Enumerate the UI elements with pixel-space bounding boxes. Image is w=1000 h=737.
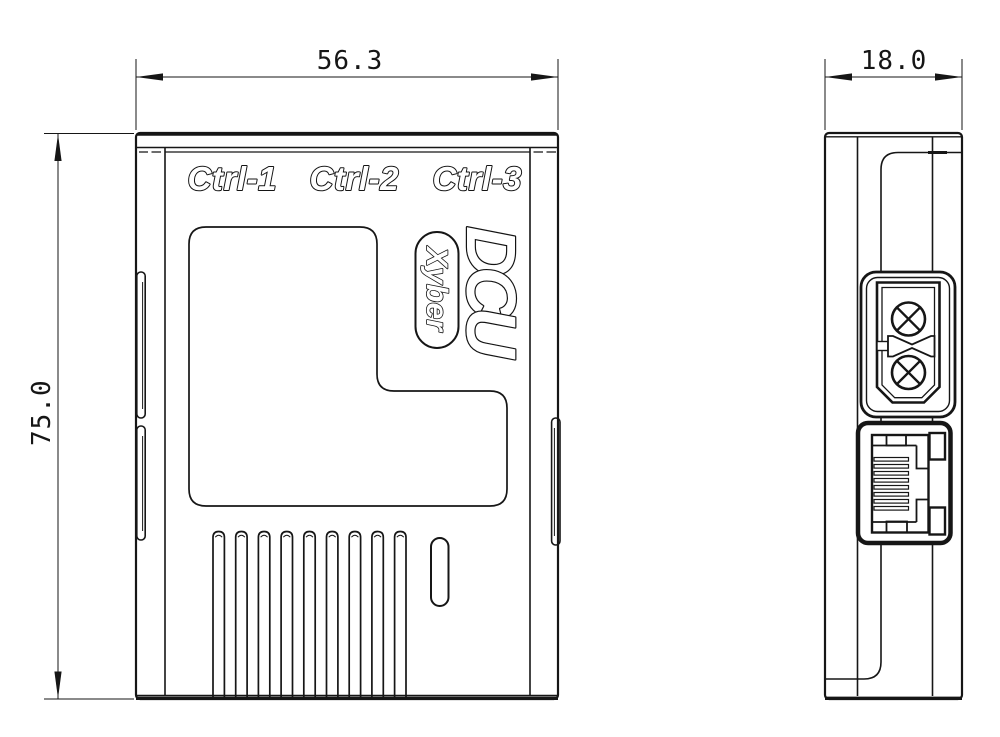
dimension-width-value: 56.3 bbox=[317, 46, 384, 76]
dimension-height: 75.0 bbox=[27, 134, 134, 700]
technical-drawing-page: 56.3 75.0 18.0 Ctrl-1 Ctrl-2 Ctrl-3 bbox=[0, 0, 1000, 737]
status-slot bbox=[431, 538, 449, 606]
arrowhead-right-icon bbox=[531, 73, 558, 80]
arrowhead-right-icon bbox=[935, 73, 962, 80]
arrowhead-down-icon bbox=[54, 672, 61, 699]
dimension-depth: 18.0 bbox=[825, 46, 962, 130]
left-snap-clip bbox=[137, 272, 145, 540]
power-key-stub bbox=[877, 342, 888, 351]
technical-drawing: 56.3 75.0 18.0 Ctrl-1 Ctrl-2 Ctrl-3 bbox=[0, 0, 1000, 737]
arrowhead-left-icon bbox=[825, 73, 852, 80]
logo-text: DCU bbox=[452, 226, 530, 359]
arrowhead-up-icon bbox=[54, 134, 61, 161]
dimension-width: 56.3 bbox=[136, 46, 558, 130]
side-view bbox=[825, 133, 962, 699]
vent-fins bbox=[213, 532, 406, 699]
port-label-ctrl3: Ctrl-3 bbox=[433, 160, 522, 197]
port-label-ctrl1: Ctrl-1 bbox=[188, 160, 277, 197]
dimension-depth-value: 18.0 bbox=[861, 46, 928, 76]
power-connector bbox=[861, 272, 955, 417]
front-view: Ctrl-1 Ctrl-2 Ctrl-3 Xyber DCU bbox=[136, 133, 560, 699]
arrowhead-left-icon bbox=[136, 73, 163, 80]
dimension-height-value: 75.0 bbox=[27, 379, 57, 446]
enclosure-outline bbox=[136, 133, 558, 699]
ethernet-port bbox=[858, 423, 951, 543]
port-label-ctrl2: Ctrl-2 bbox=[310, 160, 400, 197]
brand-text: Xyber bbox=[420, 245, 453, 333]
